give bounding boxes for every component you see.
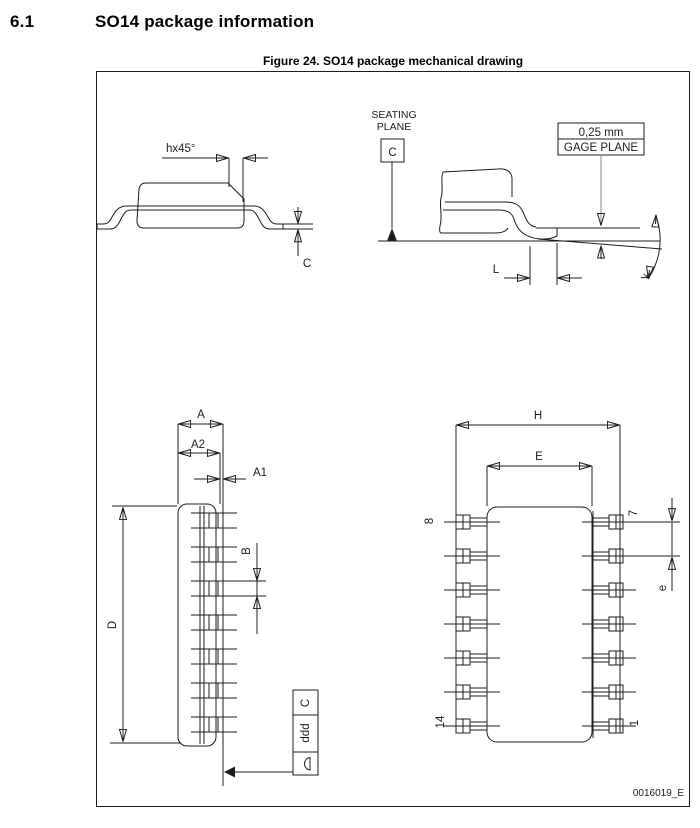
dim-chamfer bbox=[162, 158, 268, 202]
section-number: 6.1 bbox=[10, 12, 34, 32]
top-view: H E 8 7 14 1 bbox=[424, 410, 684, 799]
section-title: SO14 package information bbox=[95, 12, 314, 32]
dim-lead-thickness: C bbox=[283, 207, 313, 270]
partial-body bbox=[440, 169, 557, 239]
tolerance-frame: C ddd bbox=[224, 690, 318, 778]
dim-H bbox=[456, 425, 620, 733]
dim-pitch: e bbox=[636, 498, 680, 591]
datum-triangle bbox=[224, 767, 235, 778]
dim-D: D bbox=[107, 506, 181, 743]
gage-plane-callout: 0,25 mm GAGE PLANE bbox=[536, 123, 644, 259]
package-body-side bbox=[178, 504, 216, 746]
pin8-label: 8 bbox=[424, 518, 436, 524]
lead-frame bbox=[97, 206, 283, 229]
seating-plane-label-1: SEATING bbox=[371, 109, 416, 121]
dim-a1-label: A1 bbox=[253, 467, 267, 479]
dim-b-label: B bbox=[241, 547, 253, 555]
chamfer-dim-label: hx45° bbox=[166, 143, 196, 155]
dim-E bbox=[487, 466, 592, 506]
mechanical-drawing-svg: hx45° C SEATING PLANE C bbox=[97, 72, 689, 806]
right-pins bbox=[582, 515, 636, 733]
side-pins bbox=[191, 513, 237, 732]
seating-plane-label-2: PLANE bbox=[377, 121, 411, 133]
profile-symbol-icon bbox=[304, 758, 310, 771]
gage-value-label: 0,25 mm bbox=[579, 127, 624, 139]
datasheet-page: { "page": { "section_number": "6.1", "se… bbox=[0, 0, 700, 828]
seating-datum-triangle bbox=[387, 228, 397, 241]
side-view: hx45° C bbox=[97, 143, 313, 270]
foot-angle-label: k bbox=[641, 273, 653, 279]
dim-B: B bbox=[237, 543, 266, 634]
dim-a-label: A bbox=[197, 409, 205, 421]
dim-e-body-label: E bbox=[535, 451, 543, 463]
pin7-label: 7 bbox=[628, 510, 640, 516]
front-view: A A2 A1 B bbox=[107, 409, 318, 786]
dim-pitch-label: e bbox=[657, 585, 669, 591]
foot-length-label: L bbox=[493, 264, 500, 276]
dim-d-label: D bbox=[107, 621, 119, 629]
figure-caption: Figure 24. SO14 package mechanical drawi… bbox=[96, 54, 690, 68]
package-body-top bbox=[487, 507, 592, 742]
gage-name-label: GAGE PLANE bbox=[564, 142, 638, 154]
drawing-code: 0016019_E bbox=[633, 788, 684, 799]
pin1-label: 1 bbox=[629, 720, 641, 726]
dim-foot-length: L bbox=[493, 243, 582, 285]
tolerance-datum-label: C bbox=[300, 699, 312, 707]
figure-frame: hx45° C SEATING PLANE C bbox=[96, 71, 690, 807]
datum-c-label: C bbox=[388, 147, 396, 159]
lead-thickness-label: C bbox=[303, 258, 311, 270]
dim-a2-label: A2 bbox=[191, 439, 205, 451]
tolerance-value-label: ddd bbox=[300, 723, 312, 742]
left-pins bbox=[444, 515, 500, 733]
seating-plane-view: SEATING PLANE C 0,25 mm GAGE PLANE bbox=[371, 109, 662, 285]
pin14-label: 14 bbox=[435, 715, 447, 728]
dim-h-label: H bbox=[534, 410, 542, 422]
